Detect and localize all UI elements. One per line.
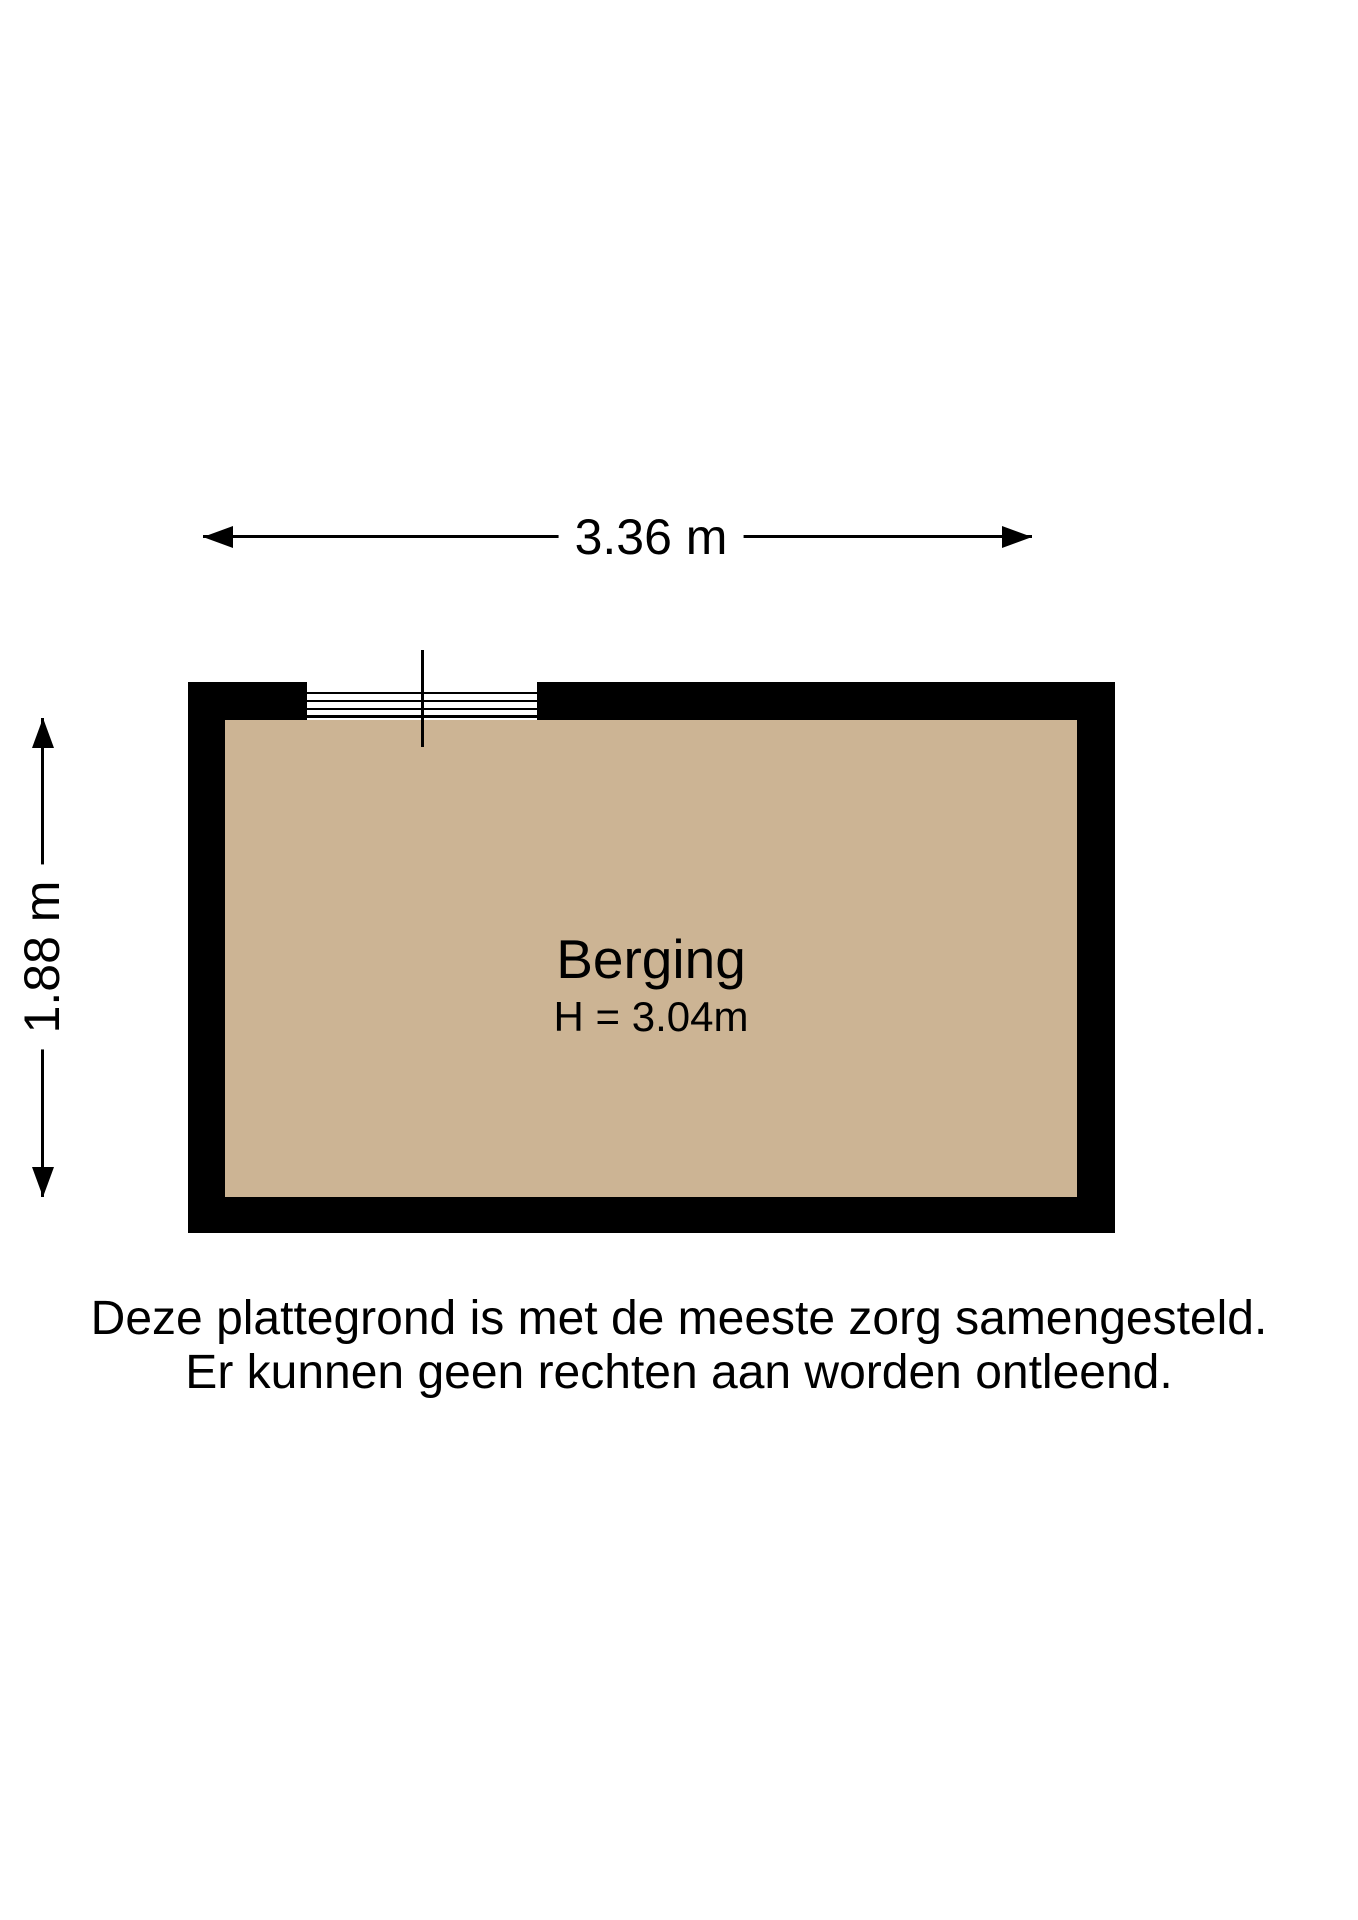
disclaimer: Deze plattegrond is met de meeste zorg s… — [0, 1292, 1358, 1400]
height-dimension-label: 1.88 m — [11, 865, 73, 1050]
arrow-down-icon — [32, 1167, 54, 1197]
disclaimer-line2: Er kunnen geen rechten aan worden ontlee… — [0, 1346, 1358, 1400]
window-center-line — [421, 650, 424, 747]
floorplan-canvas: 3.36 m 1.88 m Berging H = 3.04m Deze pla… — [0, 0, 1358, 1920]
arrow-left-icon — [203, 526, 233, 548]
room-label-block: Berging H = 3.04m — [351, 928, 951, 1044]
room-name-label: Berging — [351, 928, 951, 991]
arrow-right-icon — [1002, 526, 1032, 548]
disclaimer-line1: Deze plattegrond is met de meeste zorg s… — [0, 1292, 1358, 1346]
arrow-up-icon — [32, 718, 54, 748]
room-ceiling-height-label: H = 3.04m — [351, 991, 951, 1044]
width-dimension-label: 3.36 m — [559, 506, 744, 568]
